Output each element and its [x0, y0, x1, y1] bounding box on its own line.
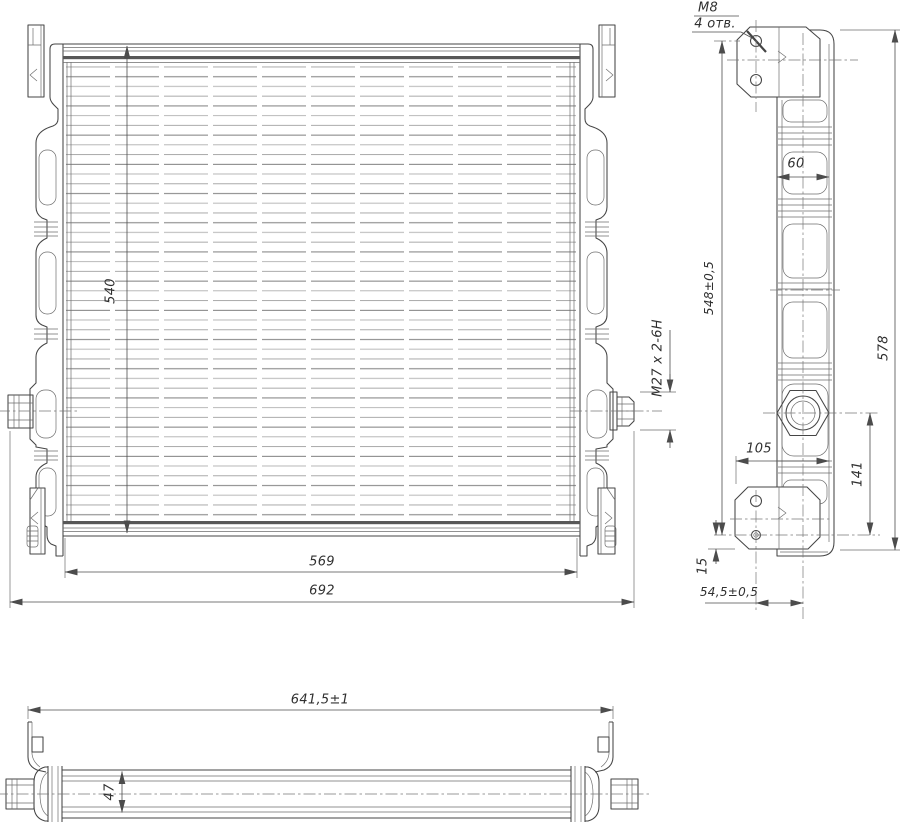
dim-bracket-width: 105	[746, 442, 772, 457]
dim-mount-thread: M8	[698, 1, 718, 16]
front-bracket-top-right	[599, 25, 615, 97]
inlet-fitting	[8, 395, 33, 428]
drawing-sheet: 540 569 692 M27 x 2-6H M8 4 отв. 60 548±…	[0, 0, 900, 823]
drawing-canvas	[0, 0, 900, 823]
top-bracket-left	[28, 722, 46, 772]
top-view	[0, 706, 652, 822]
side-view	[692, 16, 900, 620]
dim-core-depth: 47	[103, 783, 118, 800]
dim-outlet-thread: M27 x 2-6H	[651, 319, 666, 397]
dim-core-width: 569	[309, 555, 335, 570]
dim-outlet-to-hole: 141	[851, 461, 866, 487]
top-bracket-right	[595, 722, 613, 772]
radiator-core	[66, 63, 576, 520]
dim-hole-span: 548±0,5	[702, 261, 716, 315]
dim-bracket-span: 641,5±1	[291, 693, 349, 708]
front-bracket-bottom-right	[598, 488, 616, 554]
side-bracket-top	[737, 27, 820, 97]
front-bracket-top-left	[28, 25, 44, 97]
side-bracket-bottom	[735, 487, 820, 549]
front-bracket-bottom-left	[27, 488, 45, 554]
dim-core-height: 540	[104, 278, 119, 304]
dim-tank-width: 60	[787, 157, 804, 172]
dim-overall-height: 578	[877, 335, 892, 361]
dim-hole-to-edge: 15	[696, 557, 711, 574]
dim-hole-offset: 54,5±0,5	[700, 585, 758, 599]
front-view	[0, 25, 676, 608]
dim-overall-width: 692	[309, 584, 335, 599]
dim-mount-holes: 4 отв.	[694, 17, 736, 32]
